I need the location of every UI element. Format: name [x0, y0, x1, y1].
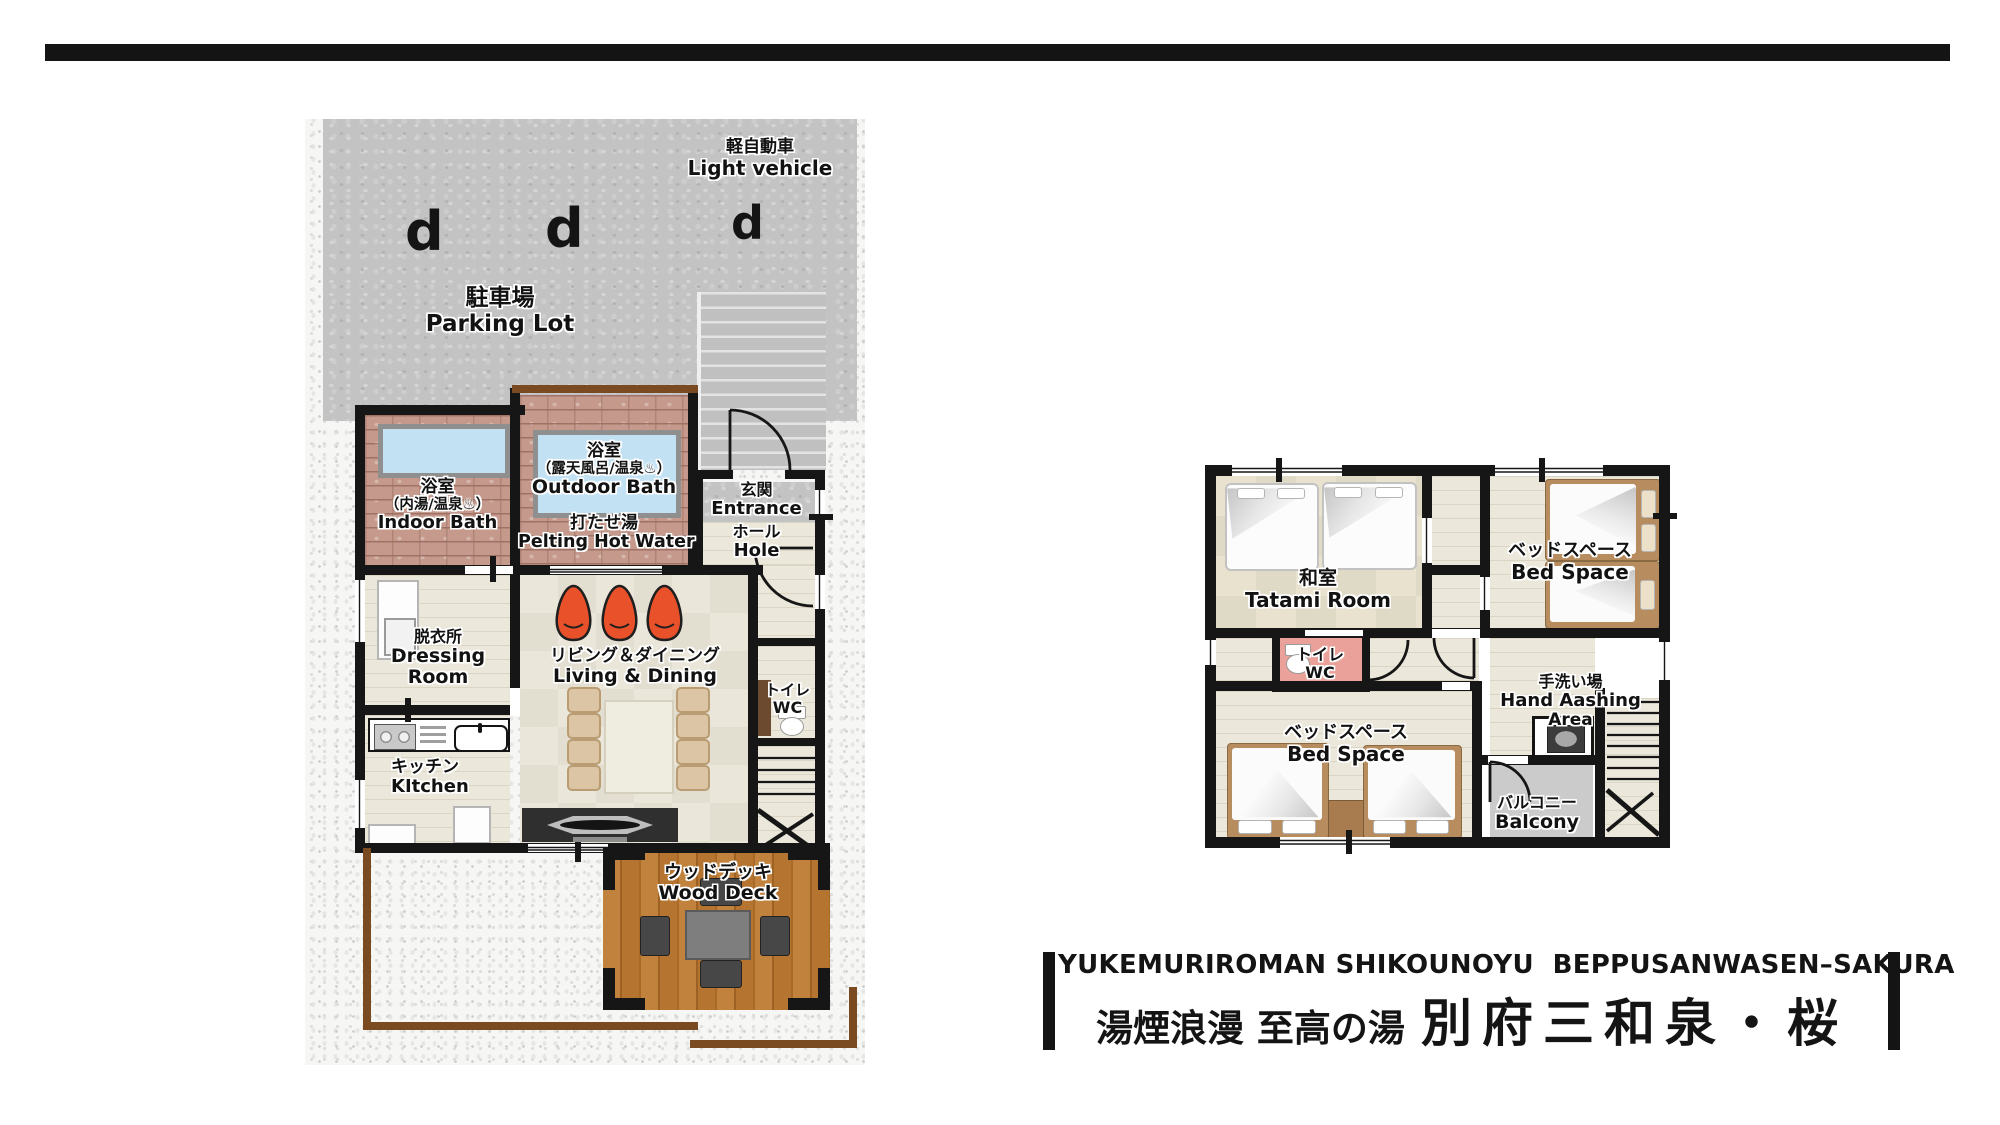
label-en: Bed Space — [1470, 561, 1670, 583]
label-en: KItchen — [391, 777, 511, 797]
label-en: Parking Lot — [400, 312, 600, 338]
label-entrance: 玄関 Entrance — [698, 481, 815, 519]
floor-plan-2f: 和室 Tatami Room ベッドスペース Bed Space トイレ WC … — [1205, 455, 1685, 855]
wc-door-arc — [1368, 640, 1408, 680]
label-balcony: バルコニー Balcony — [1452, 794, 1622, 833]
entrance-door-arc — [730, 410, 790, 470]
label-en: Wood Deck — [633, 883, 803, 904]
label-jp: 手洗い場 — [1488, 673, 1653, 691]
label-jp: 和室 — [1218, 568, 1418, 589]
label-en: Living & Dining — [530, 666, 740, 687]
top-divider-bar — [45, 44, 1950, 61]
label-dressing-room: 脱衣所 Dressing Room — [368, 628, 508, 688]
label-indoor-bath: 浴室 （内湯/温泉♨） Indoor Bath — [365, 478, 510, 533]
label-jp: 玄関 — [698, 481, 815, 499]
label-jp-detail: （露天風呂/温泉♨） — [518, 461, 690, 477]
label-jp: ベッドスペース — [1470, 541, 1670, 561]
indoor-stairs-1f — [758, 758, 815, 851]
label-jp: 軽自動車 — [660, 138, 860, 157]
label-jp: ホール — [698, 523, 815, 541]
label-en: Hand Aashing — [1488, 691, 1653, 711]
label-en: Entrance — [698, 499, 815, 519]
label-jp: バルコニー — [1452, 794, 1622, 812]
label-light-vehicle: 軽自動車 Light vehicle — [660, 138, 860, 179]
label-wood-deck: ウッドデッキ Wood Deck — [633, 863, 803, 904]
label-en: Area — [1488, 711, 1653, 730]
label-en: Pelting Hot Water — [518, 533, 690, 553]
label-en: Bed Space — [1246, 743, 1446, 765]
label-en: Outdoor Bath — [518, 477, 690, 498]
label-jp: ウッドデッキ — [633, 863, 803, 883]
label-kitchen: キッチン KItchen — [373, 758, 511, 797]
label-hall: ホール Hole — [698, 523, 815, 561]
label-tatami-room: 和室 Tatami Room — [1218, 568, 1418, 612]
bedroom-door-arc — [1434, 638, 1474, 678]
label-outdoor-bath: 浴室 （露天風呂/温泉♨） Outdoor Bath — [518, 442, 690, 499]
tv-console — [522, 808, 678, 842]
label-hand-washing: 手洗い場 Hand Aashing Area — [1488, 673, 1653, 730]
label-jp-detail: （内湯/温泉♨） — [365, 497, 510, 513]
label-en: WC — [750, 699, 825, 717]
label-en: Indoor Bath — [365, 513, 510, 533]
property-title-jp-main: 別府三和泉・桜 — [1421, 982, 1848, 1056]
label-en: WC — [1275, 664, 1365, 682]
label-wc-2f: トイレ WC — [1275, 646, 1365, 682]
label-jp: トイレ — [1275, 646, 1365, 664]
label-en: Hole — [698, 541, 815, 561]
label-en: Tatami Room — [1218, 589, 1418, 611]
label-en: Dressing — [368, 646, 508, 667]
label-jp: リビング＆ダイニング — [530, 647, 740, 666]
property-title-jp-prefix: 湯煙浪漫 至高の湯 — [1096, 998, 1405, 1052]
label-living-dining: リビング＆ダイニング Living & Dining — [530, 647, 740, 687]
label-en: Light vehicle — [660, 157, 860, 179]
title-left-bar — [1043, 952, 1055, 1050]
label-en: Room — [368, 667, 508, 688]
label-jp: 脱衣所 — [368, 628, 508, 646]
property-title-jp: 湯煙浪漫 至高の湯 別府三和泉・桜 — [1058, 982, 1886, 1056]
floor1-structure — [305, 110, 870, 1065]
label-jp: ベッドスペース — [1246, 723, 1446, 743]
floor-plan-1f: d d d — [305, 110, 870, 1065]
title-block: YUKEMURIROMAN SHIKOUNOYU BEPPUSANWASEN–S… — [1040, 948, 1905, 1053]
label-en: Balcony — [1452, 812, 1622, 833]
floorplan-page: d d d — [0, 0, 2000, 1125]
label-wc-1f: トイレ WC — [750, 682, 825, 717]
label-bed-space-lower: ベッドスペース Bed Space — [1246, 723, 1446, 766]
label-jp: 浴室 — [365, 478, 510, 497]
label-jp: 浴室 — [518, 442, 690, 461]
label-jp: 打たせ湯 — [518, 514, 690, 533]
property-title-en: YUKEMURIROMAN SHIKOUNOYU BEPPUSANWASEN–S… — [1058, 950, 1886, 980]
label-jp: トイレ — [750, 682, 825, 699]
label-pelting-hot-water: 打たせ湯 Pelting Hot Water — [518, 514, 690, 553]
label-jp: キッチン — [391, 758, 511, 777]
label-parking-lot: 駐車場 Parking Lot — [400, 286, 600, 338]
label-bed-space-upper: ベッドスペース Bed Space — [1470, 541, 1670, 584]
label-jp: 駐車場 — [400, 286, 600, 312]
